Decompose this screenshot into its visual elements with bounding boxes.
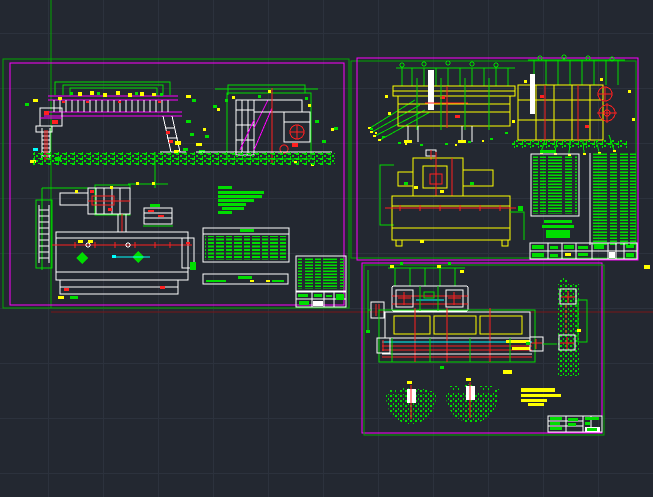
sheet-1-notes-text	[218, 186, 264, 214]
sheet-2-title-block	[530, 243, 637, 259]
cad-drawing-canvas	[0, 0, 653, 497]
sheet-1-plan-view	[36, 152, 196, 299]
sheet-3-saddle-section-right	[446, 378, 500, 423]
sheet-2	[351, 55, 638, 260]
sheet-2-plan-view	[380, 150, 524, 246]
sheet-3-left-detail	[366, 270, 384, 333]
cad-model-space[interactable]	[0, 0, 653, 497]
sheet-3-long-section	[377, 308, 535, 369]
sheet-3-saddle-section-left	[386, 381, 436, 424]
sheet-3-title-block	[548, 416, 602, 432]
sheet-2-parts-table-left	[531, 150, 579, 238]
sheet-1-front-elevation	[25, 82, 205, 165]
sheet-1-parts-table	[203, 228, 289, 284]
sheet-1-bom-table	[296, 256, 346, 291]
sheet-2-parts-table-right	[590, 153, 636, 245]
sheet-3-end-view	[388, 262, 468, 311]
ground-hatch	[195, 152, 335, 165]
ground-hatch	[33, 152, 198, 165]
sheet-1-side-elevation	[195, 85, 338, 166]
sheet-2-right-elevation	[512, 55, 635, 156]
sheet-2-left-elevation	[368, 61, 515, 146]
sheet-1	[3, 59, 349, 308]
sheet-3	[362, 262, 650, 435]
sheet-3-notes-text	[503, 370, 561, 406]
